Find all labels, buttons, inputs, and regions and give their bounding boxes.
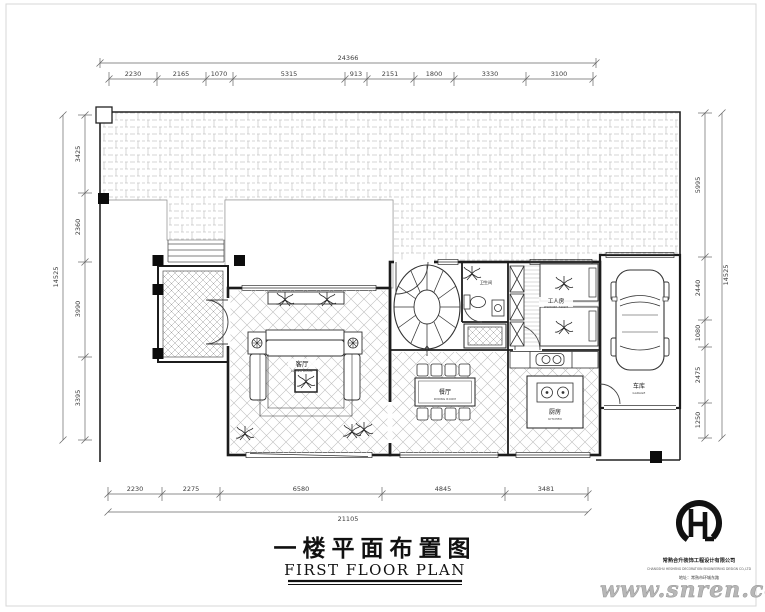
dim-top-1: 2165 [173,70,190,78]
column [234,255,245,266]
bed-2 [540,307,598,346]
dim-right-2: 1080 [694,325,702,342]
living-room: 客厅 LIVING ROOM [231,291,388,454]
living-north-window [242,285,376,290]
bed-1 [540,264,598,301]
dim-bottom-4: 3481 [538,485,555,493]
bathroom-label: 卫生间 [480,279,493,286]
column [98,193,109,204]
company-logo-block: 常熟合升装饰工程设计有限公司 CHANGSHU HESHENG DECORATI… [647,495,752,580]
company-name-en: CHANGSHU HESHENG DECORATION ENGINEERING … [647,567,752,571]
hall-north-window [438,259,458,264]
dining-room-label-en: DINING ROOM [434,397,456,401]
side-table-flower [252,338,262,348]
dim-top-4: 913 [350,70,362,78]
living-south-window [246,452,372,457]
entry-steps [168,240,224,262]
toilet-icon [471,297,486,308]
garage-rear-door [600,384,620,404]
title-zh: 一楼平面布置图 [274,535,477,562]
stove-island: 厨房 KITCHEN [527,376,583,428]
garage-label-en: GARAGE [633,391,646,395]
worker-room-label-en: WORKER ROOM [544,305,569,309]
dim-left-3: 3395 [74,390,82,407]
kitchen-south-window [516,452,590,457]
dim-bottom-3: 4845 [435,485,452,493]
dim-top-6: 1800 [426,70,443,78]
dim-top-3: 5315 [281,70,298,78]
title-en: FIRST FLOOR PLAN [284,561,466,579]
dim-left-1: 2360 [74,219,82,236]
dimension-labels-left: 3425 2360 3990 3395 14525 [52,146,82,407]
living-room-label: 客厅 [296,359,310,368]
column [153,255,164,266]
column [153,348,164,359]
dim-right-1: 2440 [694,280,702,297]
bath-sink [492,300,504,316]
dim-right-0: 5995 [694,177,702,194]
company-logo-icon [671,495,727,551]
living-room-label-en: LIVING ROOM [291,369,313,373]
worker-room-label: 工人房 [548,297,565,305]
bathroom: 卫生间 [463,266,506,348]
dim-bottom-2: 6580 [293,485,310,493]
dim-left-2: 3990 [74,301,82,318]
dim-bottom-0: 2230 [127,485,144,493]
dining-room-label: 餐厅 [439,388,451,396]
wardrobe [510,266,524,346]
dimension-chain-bottom [105,487,592,516]
kitchen-label: 厨房 [549,408,561,416]
kitchen: 厨房 KITCHEN [510,352,598,453]
plant-icon [463,266,481,280]
worker-room: 工人房 WORKER ROOM [510,264,598,348]
garage-label: 车库 [633,382,645,390]
dim-right-4: 1250 [694,412,702,429]
toilet-tank [464,295,470,309]
side-table-flower [348,338,358,348]
main-entry-door [396,262,428,294]
garage: 车库 GARAGE [611,270,669,395]
kitchen-label-en: KITCHEN [548,417,562,421]
floor-plan-sheet: 客厅 LIVING ROOM 卫生间 [0,0,765,612]
dim-bottom-total: 21105 [338,515,359,523]
dim-top-7: 3330 [482,70,499,78]
watermark-text: www.snren.com [600,577,765,603]
dimension-labels-top: 24366 2230 2165 1070 5315 913 2151 1800 … [125,54,568,78]
dim-top-0: 2230 [125,70,142,78]
dim-top-total: 24366 [338,54,359,62]
kitchen-counter [510,352,598,369]
dimension-labels-bottom: 2230 2275 6580 4845 3481 21105 [127,485,555,523]
dim-right-3: 2475 [694,367,702,384]
company-name-zh: 常熟合升装饰工程设计有限公司 [663,556,736,564]
spiral-staircase [394,265,460,356]
dim-right-total: 14525 [722,265,730,286]
front-terrace [225,200,393,288]
dim-left-0: 3425 [74,146,82,163]
dim-top-8: 3100 [551,70,568,78]
floor-plan-drawing: 客厅 LIVING ROOM 卫生间 [0,0,765,612]
dim-bottom-1: 2275 [183,485,200,493]
entry-porch [158,266,228,362]
column [650,451,662,463]
corner-post [96,107,112,123]
tv-cabinet [268,292,344,304]
dim-left-total: 14525 [52,267,60,288]
dimension-labels-right: 5995 2440 1080 2475 1250 14525 [694,177,730,429]
dim-top-5: 2151 [382,70,399,78]
car-icon [611,270,669,370]
dining-south-window [400,452,498,457]
dim-top-2: 1070 [211,70,228,78]
column [153,284,164,295]
service-shaft [464,324,506,348]
title-block: 一楼平面布置图 FIRST FLOOR PLAN [274,535,477,585]
garage-north-window [606,252,674,257]
